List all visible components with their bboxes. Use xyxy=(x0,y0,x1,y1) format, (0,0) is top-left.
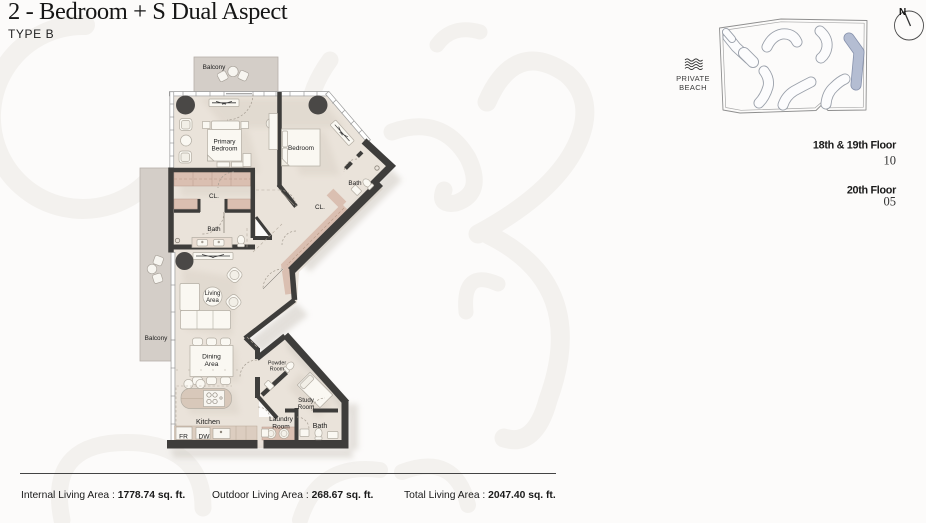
svg-text:N: N xyxy=(899,7,906,18)
svg-text:05: 05 xyxy=(884,195,897,209)
svg-text:18th & 19th Floor: 18th & 19th Floor xyxy=(813,140,897,152)
svg-text:BEACH: BEACH xyxy=(679,83,707,92)
svg-text:10: 10 xyxy=(884,154,897,168)
svg-text:PRIVATE: PRIVATE xyxy=(676,74,710,83)
